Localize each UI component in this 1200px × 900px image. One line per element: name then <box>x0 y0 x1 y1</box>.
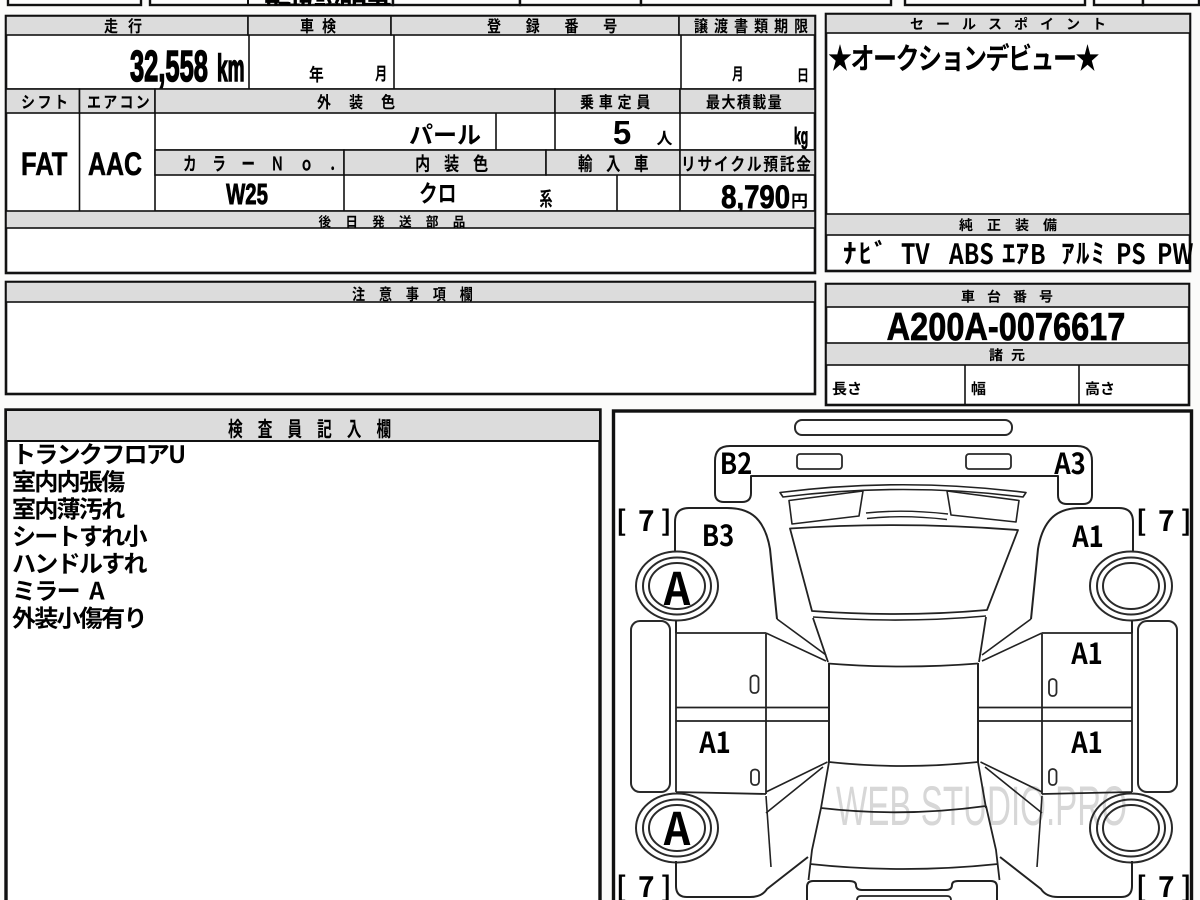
svg-text:8,790: 8,790 <box>721 180 790 215</box>
svg-text:A200A-0076617: A200A-0076617 <box>887 305 1126 348</box>
svg-text:kg: kg <box>794 123 808 149</box>
svg-text:5: 5 <box>613 114 631 151</box>
svg-text:FAT: FAT <box>21 147 68 182</box>
svg-text:AAC: AAC <box>88 147 142 183</box>
svg-text:km: km <box>217 48 244 90</box>
svg-text:W25: W25 <box>226 179 268 211</box>
svg-text:32,558: 32,558 <box>130 41 208 91</box>
